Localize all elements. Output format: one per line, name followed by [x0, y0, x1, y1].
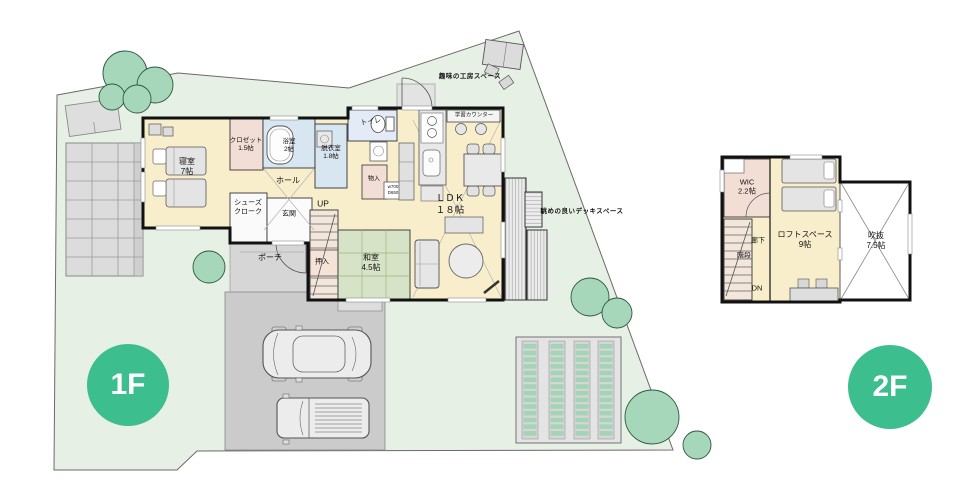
label-stairs: 階段 [737, 253, 751, 262]
label-study-counter: 学習カウンター [455, 113, 494, 120]
label-bath: 浴室2帖 [283, 138, 296, 154]
counter-stool [476, 124, 487, 135]
label-storage-dims: w700D650 [388, 184, 399, 196]
tree [683, 431, 711, 459]
tree [625, 390, 679, 444]
car-van [277, 394, 369, 444]
label-entrance: 玄関 [282, 211, 296, 220]
label-ldk: ＬＤＫ１８帖 [436, 193, 465, 217]
tall-cabinets [399, 143, 414, 200]
label-oshiire: 押入 [315, 259, 329, 268]
car-sedan [263, 326, 371, 382]
label-hall: ホール [276, 176, 300, 186]
floor-plan-canvas: 寝室7帖 クロゼット1.5帖 浴室2帖 脱衣室1.8帖 トイレ ホール シューズ… [0, 0, 980, 500]
wood-deck [505, 178, 547, 300]
tree [99, 84, 125, 110]
label-up: UP [317, 199, 329, 210]
label-porch: ポーチ [258, 253, 282, 263]
label-shoes-closet: シューズクローク [234, 199, 262, 217]
floor-badge-2f: 2F [848, 345, 932, 429]
pergola-grid [66, 143, 143, 276]
label-bedroom: 寝室7帖 [179, 157, 195, 177]
tree [602, 298, 632, 328]
tree [123, 85, 151, 113]
label-closet: クロゼット1.5帖 [230, 137, 263, 153]
label-dressing: 脱衣室1.8帖 [321, 145, 341, 161]
label-workshop-space: 趣味の工房スペース [439, 73, 501, 81]
wic-shelf [724, 159, 744, 173]
label-void: 吹抜7.5帖 [866, 231, 885, 251]
label-wic: WIC2.2帖 [738, 178, 756, 197]
label-loft: ロフトスペース9帖 [777, 230, 832, 250]
label-hallway: 廊下 [751, 238, 765, 247]
kitchen-counter [419, 110, 446, 201]
washbasin [370, 142, 387, 161]
garden-field [516, 337, 621, 443]
room-entrance [267, 198, 312, 243]
label-storage: 物入 [368, 176, 380, 184]
floor-badge-1f: 1F [87, 344, 169, 426]
counter-stool [456, 124, 467, 135]
label-washitsu: 和室4.5帖 [361, 253, 380, 273]
label-deck-space: 眺めの良いデッキスペース [540, 208, 623, 216]
label-dn: DN [752, 283, 763, 292]
tree [193, 251, 225, 283]
